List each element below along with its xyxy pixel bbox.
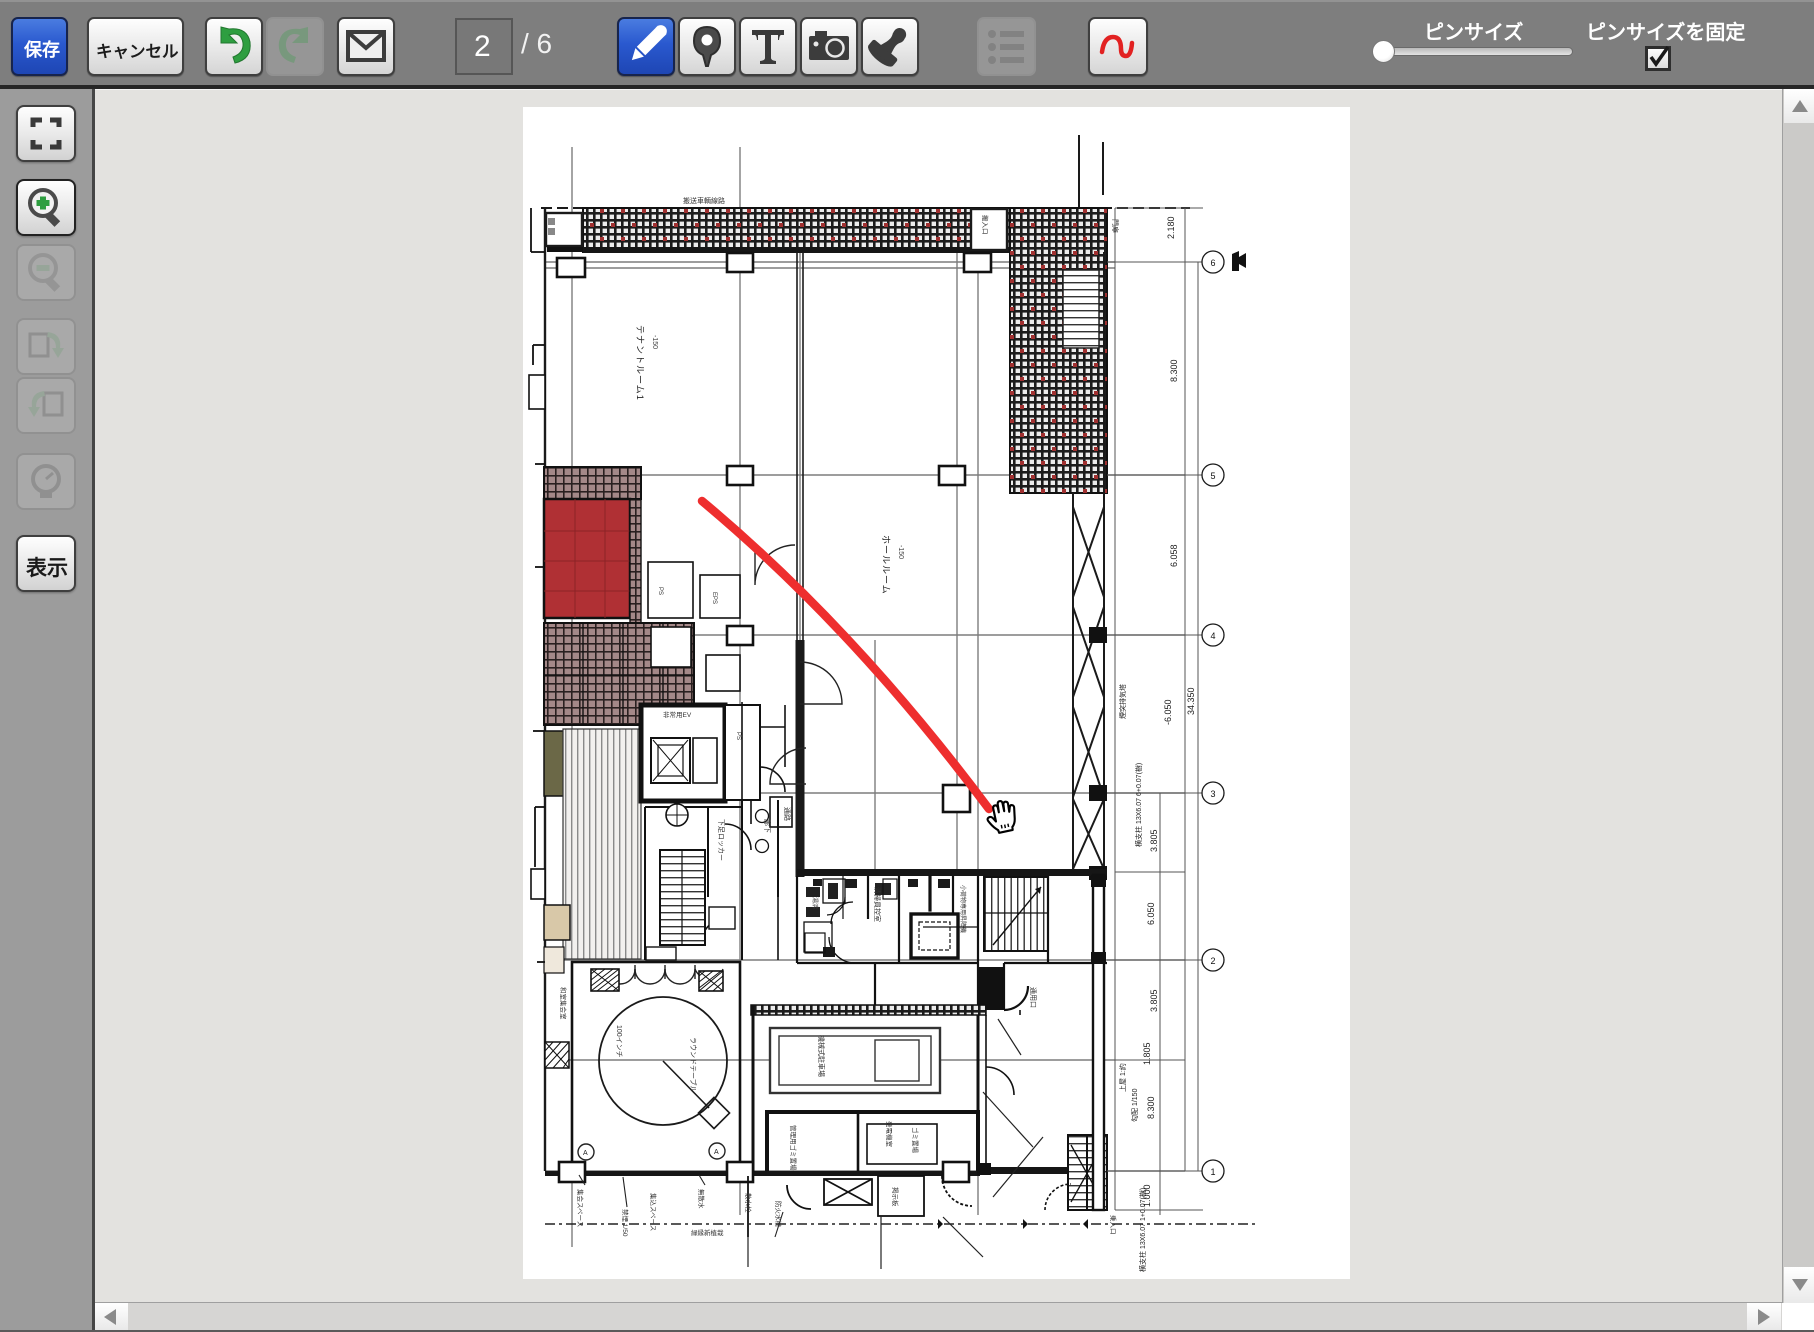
svg-text:100インチ: 100インチ	[615, 1025, 623, 1058]
svg-text:EPS: EPS	[711, 592, 717, 604]
svg-text:散水栓: 散水栓	[744, 1193, 753, 1213]
svg-text:掲示板: 掲示板	[891, 1187, 900, 1207]
svg-text:8.300: 8.300	[1146, 1096, 1156, 1119]
svg-text:2.180: 2.180	[1166, 216, 1176, 239]
svg-text:-6.050: -6.050	[1163, 699, 1173, 725]
svg-text:ホールルーム: ホールルーム	[881, 535, 891, 595]
svg-text:管理用ゴミ置場: 管理用ゴミ置場	[789, 1125, 798, 1171]
svg-text:上屋 1:約: 上屋 1:約	[1118, 1063, 1127, 1092]
svg-text:PS: PS	[735, 732, 741, 740]
svg-text:5: 5	[1210, 471, 1215, 481]
svg-text:禁煙 1/50: 禁煙 1/50	[621, 1209, 630, 1237]
svg-text:煙突排気塔: 煙突排気塔	[1118, 684, 1127, 719]
svg-text:A: A	[583, 1150, 588, 1157]
svg-text:下足ロッカー: 下足ロッカー	[717, 819, 725, 861]
svg-text:6: 6	[1210, 258, 1215, 268]
svg-text:34.350: 34.350	[1186, 687, 1196, 715]
svg-text:無散水: 無散水	[697, 1189, 706, 1209]
svg-text:3.805: 3.805	[1149, 829, 1159, 852]
svg-text:ゴミ置場: ゴミ置場	[911, 1127, 920, 1154]
svg-text:和室集会室: 和室集会室	[559, 987, 568, 1020]
svg-text:勾配 1/150: 勾配 1/150	[1130, 1088, 1139, 1122]
svg-text:搬入口: 搬入口	[981, 215, 990, 235]
svg-text:1: 1	[1210, 1167, 1215, 1177]
svg-text:発電機室: 発電機室	[885, 1121, 894, 1148]
svg-text:緑縁新植栽: 緑縁新植栽	[691, 1228, 724, 1237]
svg-text:3: 3	[1210, 789, 1215, 799]
svg-text:通用口: 通用口	[1029, 987, 1038, 1008]
svg-text:防火水槽: 防火水槽	[774, 1201, 783, 1228]
svg-text:8.300: 8.300	[1169, 359, 1179, 382]
svg-text:乗入口: 乗入口	[1109, 1215, 1118, 1235]
svg-text:6.058: 6.058	[1169, 544, 1179, 567]
svg-text:3.805: 3.805	[1149, 989, 1159, 1012]
svg-text:集込スペース: 集込スペース	[649, 1193, 658, 1231]
svg-text:廊下: 廊下	[763, 819, 772, 833]
svg-text:-150: -150	[897, 545, 904, 559]
svg-text:6.050: 6.050	[1146, 902, 1156, 925]
svg-text:機械式駐車場: 機械式駐車場	[817, 1035, 826, 1077]
svg-text:2: 2	[1210, 956, 1215, 966]
svg-text:湯沸: 湯沸	[811, 897, 819, 909]
svg-text:テナントルーム1: テナントルーム1	[635, 325, 645, 401]
svg-text:4: 4	[1210, 631, 1215, 641]
svg-text:非常用EV: 非常用EV	[663, 710, 692, 719]
svg-text:ラウンドテーブル: ラウンドテーブル	[689, 1037, 698, 1093]
svg-text:集会スペース: 集会スペース	[576, 1189, 585, 1227]
svg-text:-150: -150	[651, 335, 658, 349]
svg-text:PS: PS	[657, 587, 663, 595]
svg-text:搬送車輌線路: 搬送車輌線路	[683, 196, 725, 205]
svg-text:小荷物専用昇降機: 小荷物専用昇降機	[959, 885, 967, 933]
svg-text:1.805: 1.805	[1142, 1042, 1152, 1065]
svg-text:清掃員控室: 清掃員控室	[873, 887, 882, 922]
svg-text:A: A	[714, 1149, 719, 1156]
svg-text:横支柱 13X6.07 6+0.07(樹): 横支柱 13X6.07 6+0.07(樹)	[1134, 763, 1143, 847]
svg-text:横支柱 13X6.07 1+0.07(樹): 横支柱 13X6.07 1+0.07(樹)	[1138, 1188, 1147, 1272]
svg-text:通路: 通路	[783, 807, 792, 821]
